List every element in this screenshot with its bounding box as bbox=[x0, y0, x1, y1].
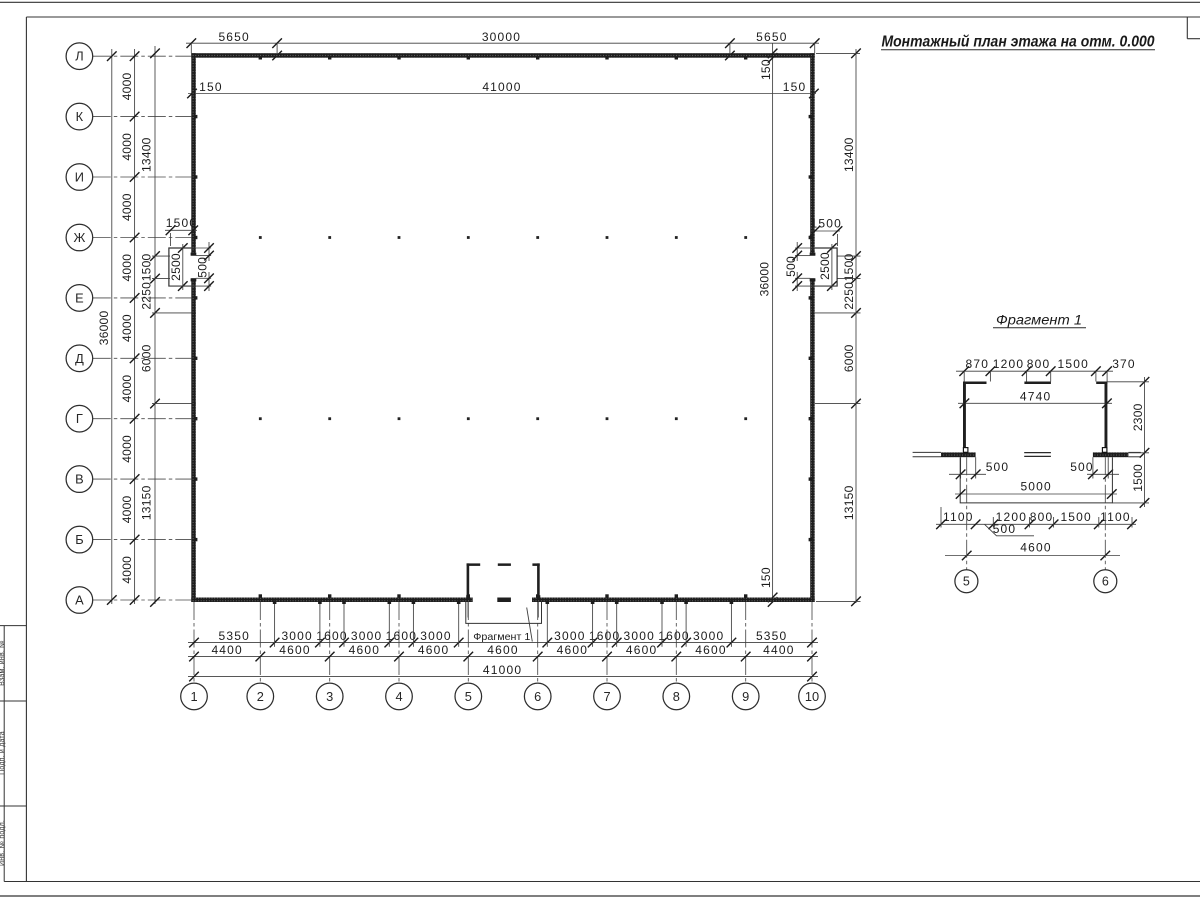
svg-text:4000: 4000 bbox=[120, 495, 134, 523]
svg-text:2250: 2250 bbox=[140, 282, 154, 310]
svg-text:Б: Б bbox=[75, 532, 83, 547]
svg-text:36000: 36000 bbox=[758, 262, 772, 297]
svg-text:3000: 3000 bbox=[281, 629, 313, 643]
svg-text:5650: 5650 bbox=[756, 30, 788, 44]
svg-text:1500: 1500 bbox=[166, 216, 198, 230]
svg-text:6000: 6000 bbox=[140, 344, 154, 372]
svg-text:500: 500 bbox=[1070, 460, 1094, 474]
svg-text:150: 150 bbox=[199, 80, 223, 94]
svg-text:4000: 4000 bbox=[120, 556, 134, 584]
svg-text:5: 5 bbox=[963, 575, 970, 589]
svg-text:Е: Е bbox=[75, 290, 84, 305]
svg-text:4400: 4400 bbox=[211, 643, 243, 657]
svg-text:1500: 1500 bbox=[842, 253, 856, 281]
svg-text:150: 150 bbox=[759, 567, 773, 588]
svg-text:5350: 5350 bbox=[756, 629, 788, 643]
svg-text:4000: 4000 bbox=[120, 435, 134, 463]
svg-text:6000: 6000 bbox=[842, 344, 856, 372]
svg-text:1600: 1600 bbox=[658, 629, 690, 643]
svg-text:1500: 1500 bbox=[1131, 464, 1145, 492]
svg-text:2300: 2300 bbox=[1131, 403, 1145, 431]
svg-text:4600: 4600 bbox=[626, 643, 658, 657]
svg-text:И: И bbox=[75, 170, 84, 185]
svg-text:1600: 1600 bbox=[386, 629, 418, 643]
svg-text:500: 500 bbox=[993, 522, 1017, 536]
svg-text:Фрагмент 1: Фрагмент 1 bbox=[473, 631, 530, 643]
svg-text:А: А bbox=[75, 593, 84, 608]
svg-text:13150: 13150 bbox=[140, 485, 154, 520]
svg-text:6: 6 bbox=[534, 689, 541, 704]
svg-text:3000: 3000 bbox=[351, 629, 383, 643]
svg-text:3000: 3000 bbox=[693, 629, 725, 643]
svg-text:Взам. инв. №: Взам. инв. № bbox=[0, 640, 6, 686]
svg-text:1500: 1500 bbox=[1060, 510, 1092, 524]
svg-text:1500: 1500 bbox=[811, 216, 843, 230]
svg-text:Д: Д bbox=[75, 351, 84, 366]
svg-text:9: 9 bbox=[742, 689, 749, 704]
svg-text:13150: 13150 bbox=[842, 485, 856, 520]
svg-text:1: 1 bbox=[190, 689, 197, 704]
svg-text:1200: 1200 bbox=[993, 357, 1025, 371]
svg-text:5000: 5000 bbox=[1020, 480, 1052, 494]
svg-text:3000: 3000 bbox=[554, 629, 586, 643]
svg-text:4000: 4000 bbox=[120, 375, 134, 403]
svg-text:4: 4 bbox=[395, 689, 402, 704]
svg-text:5650: 5650 bbox=[218, 30, 250, 44]
svg-text:4000: 4000 bbox=[120, 72, 134, 100]
svg-text:4000: 4000 bbox=[120, 193, 134, 221]
svg-text:500: 500 bbox=[784, 256, 798, 277]
svg-text:1100: 1100 bbox=[1100, 510, 1131, 524]
svg-text:8: 8 bbox=[673, 689, 680, 704]
svg-text:800: 800 bbox=[1030, 510, 1054, 524]
svg-text:Ж: Ж bbox=[73, 230, 85, 245]
svg-text:1600: 1600 bbox=[316, 629, 348, 643]
svg-text:500: 500 bbox=[196, 257, 210, 278]
svg-text:6: 6 bbox=[1102, 575, 1109, 589]
svg-text:1100: 1100 bbox=[943, 510, 974, 524]
svg-text:1500: 1500 bbox=[1058, 357, 1090, 371]
svg-text:1600: 1600 bbox=[589, 629, 621, 643]
svg-text:500: 500 bbox=[986, 460, 1010, 474]
svg-text:3000: 3000 bbox=[420, 629, 452, 643]
svg-text:4400: 4400 bbox=[763, 643, 795, 657]
svg-text:13400: 13400 bbox=[140, 137, 154, 172]
svg-text:30000: 30000 bbox=[482, 30, 521, 44]
svg-text:2500: 2500 bbox=[169, 253, 183, 281]
svg-text:150: 150 bbox=[783, 80, 807, 94]
svg-text:1500: 1500 bbox=[140, 253, 154, 281]
svg-text:4600: 4600 bbox=[487, 643, 519, 657]
svg-text:2500: 2500 bbox=[818, 252, 832, 280]
svg-text:Л: Л bbox=[75, 49, 83, 64]
svg-text:4600: 4600 bbox=[557, 643, 589, 657]
svg-text:10: 10 bbox=[805, 689, 819, 704]
svg-text:Фрагмент 1: Фрагмент 1 bbox=[996, 313, 1082, 328]
svg-text:370: 370 bbox=[1112, 357, 1136, 371]
svg-text:4600: 4600 bbox=[418, 643, 450, 657]
svg-text:13400: 13400 bbox=[842, 137, 856, 172]
svg-text:4000: 4000 bbox=[120, 314, 134, 342]
svg-text:Монтажный план этажа на отм. 0: Монтажный план этажа на отм. 0.000 bbox=[882, 33, 1155, 50]
svg-text:41000: 41000 bbox=[482, 80, 521, 94]
svg-text:4000: 4000 bbox=[120, 254, 134, 282]
svg-text:4600: 4600 bbox=[1020, 540, 1052, 554]
svg-text:5350: 5350 bbox=[219, 629, 251, 643]
svg-text:41000: 41000 bbox=[483, 663, 522, 677]
svg-text:3000: 3000 bbox=[624, 629, 656, 643]
svg-text:4600: 4600 bbox=[695, 643, 727, 657]
svg-text:Г: Г bbox=[76, 411, 83, 426]
svg-text:2: 2 bbox=[257, 689, 264, 704]
svg-text:4600: 4600 bbox=[349, 643, 381, 657]
svg-text:2250: 2250 bbox=[842, 282, 856, 310]
svg-text:870: 870 bbox=[965, 357, 989, 371]
svg-text:Инв. № подл.: Инв. № подл. bbox=[0, 820, 6, 866]
svg-text:3: 3 bbox=[326, 689, 333, 704]
svg-text:36000: 36000 bbox=[97, 311, 111, 346]
svg-text:7: 7 bbox=[603, 689, 610, 704]
svg-text:Подп. и дата: Подп. и дата bbox=[0, 731, 6, 775]
svg-text:5: 5 bbox=[465, 689, 472, 704]
svg-text:4000: 4000 bbox=[120, 133, 134, 161]
svg-text:150: 150 bbox=[759, 59, 773, 80]
svg-text:В: В bbox=[75, 472, 84, 487]
svg-text:800: 800 bbox=[1027, 357, 1051, 371]
svg-text:4740: 4740 bbox=[1020, 389, 1052, 403]
svg-text:4600: 4600 bbox=[279, 643, 311, 657]
svg-text:К: К bbox=[76, 109, 84, 124]
